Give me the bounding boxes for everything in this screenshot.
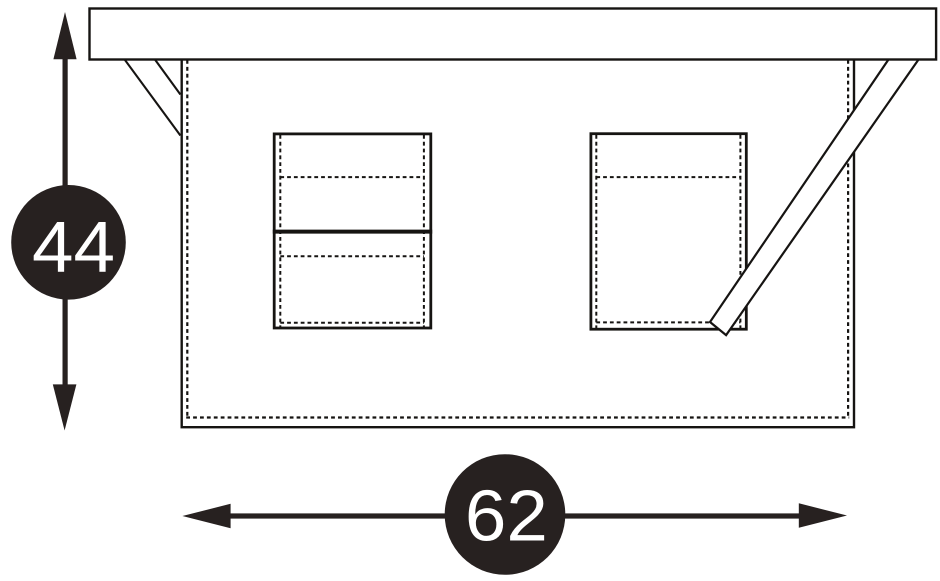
svg-text:44: 44 [32,208,115,288]
svg-text:62: 62 [465,476,548,556]
